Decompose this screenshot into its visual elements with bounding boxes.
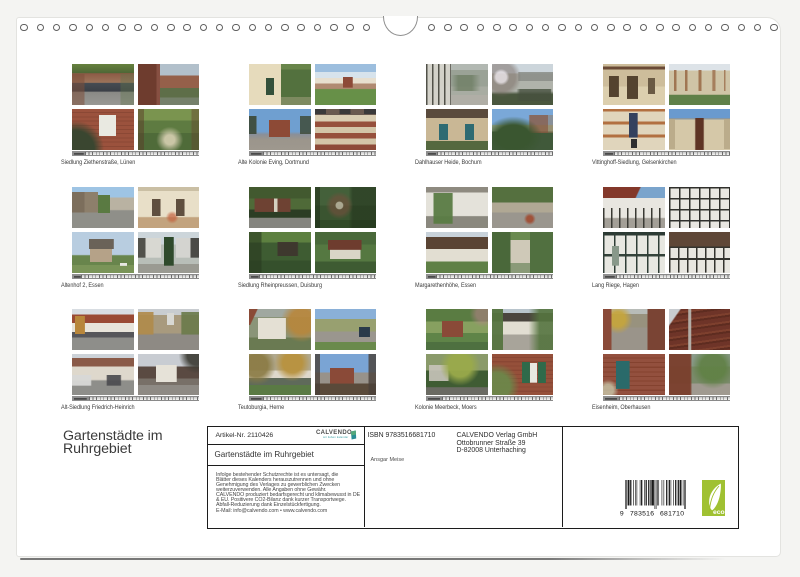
svg-text:681710: 681710	[660, 511, 684, 518]
svg-text:783516: 783516	[630, 511, 654, 518]
svg-text:eco: eco	[713, 509, 725, 516]
svg-text:9: 9	[620, 511, 624, 518]
